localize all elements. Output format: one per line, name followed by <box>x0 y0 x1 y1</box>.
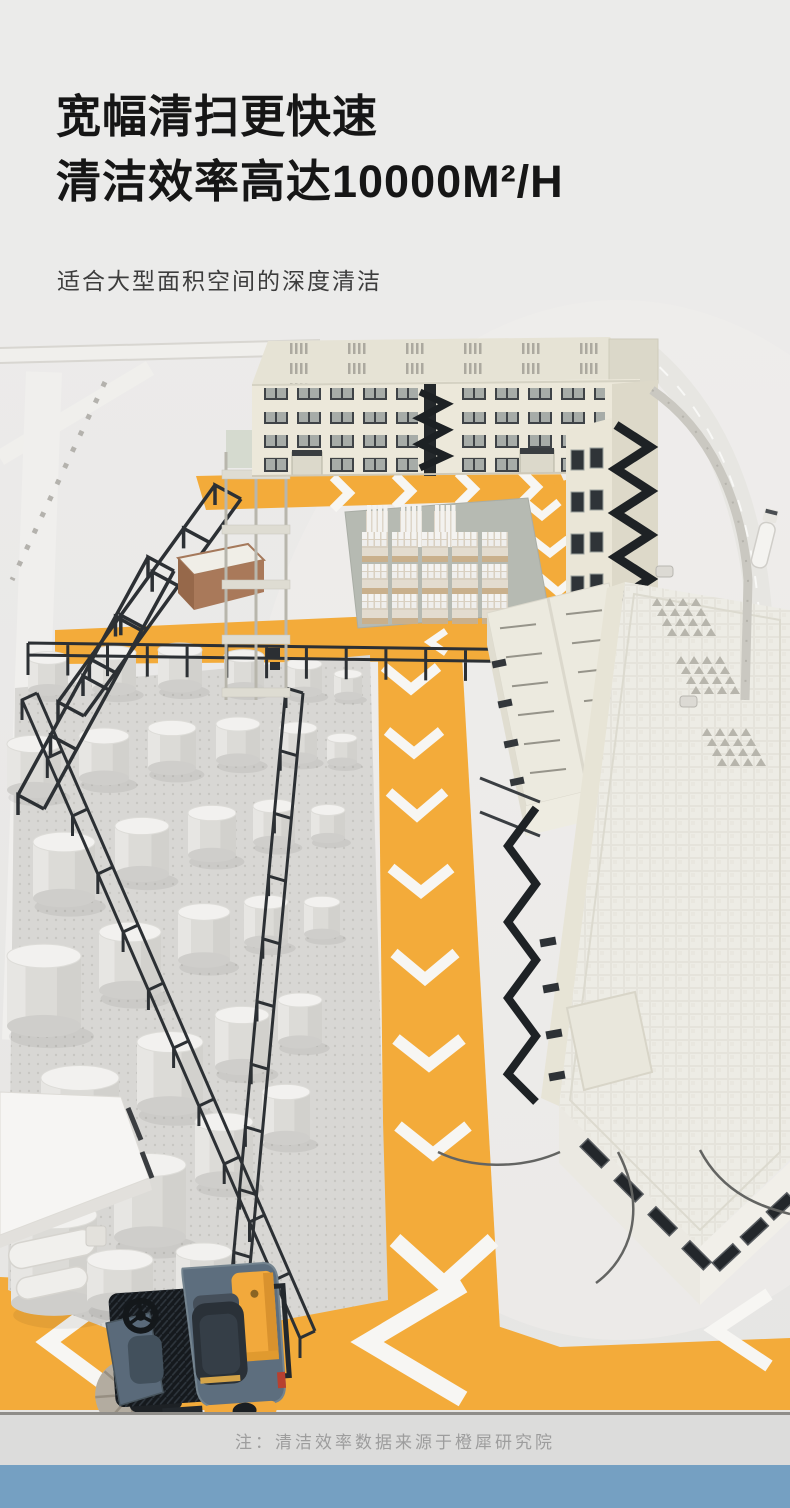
tail-light <box>277 1372 286 1389</box>
data-source-note: 注：清洁效率数据来源于橙犀研究院 <box>235 1428 555 1453</box>
page-title-line2: 清洁效率高达10000M²/H <box>56 149 564 214</box>
page-title: 宽幅清扫更快速 清洁效率高达10000M²/H <box>56 84 564 215</box>
driver-seat <box>190 1293 248 1386</box>
page-title-line1: 宽幅清扫更快速 <box>56 84 564 149</box>
footer-strip: 注：清洁效率数据来源于橙犀研究院 <box>0 1412 790 1465</box>
factory-scene-illustration <box>0 0 790 1508</box>
bottom-bar <box>0 1465 790 1508</box>
page-subtitle: 适合大型面积空间的深度清洁 <box>57 262 382 296</box>
